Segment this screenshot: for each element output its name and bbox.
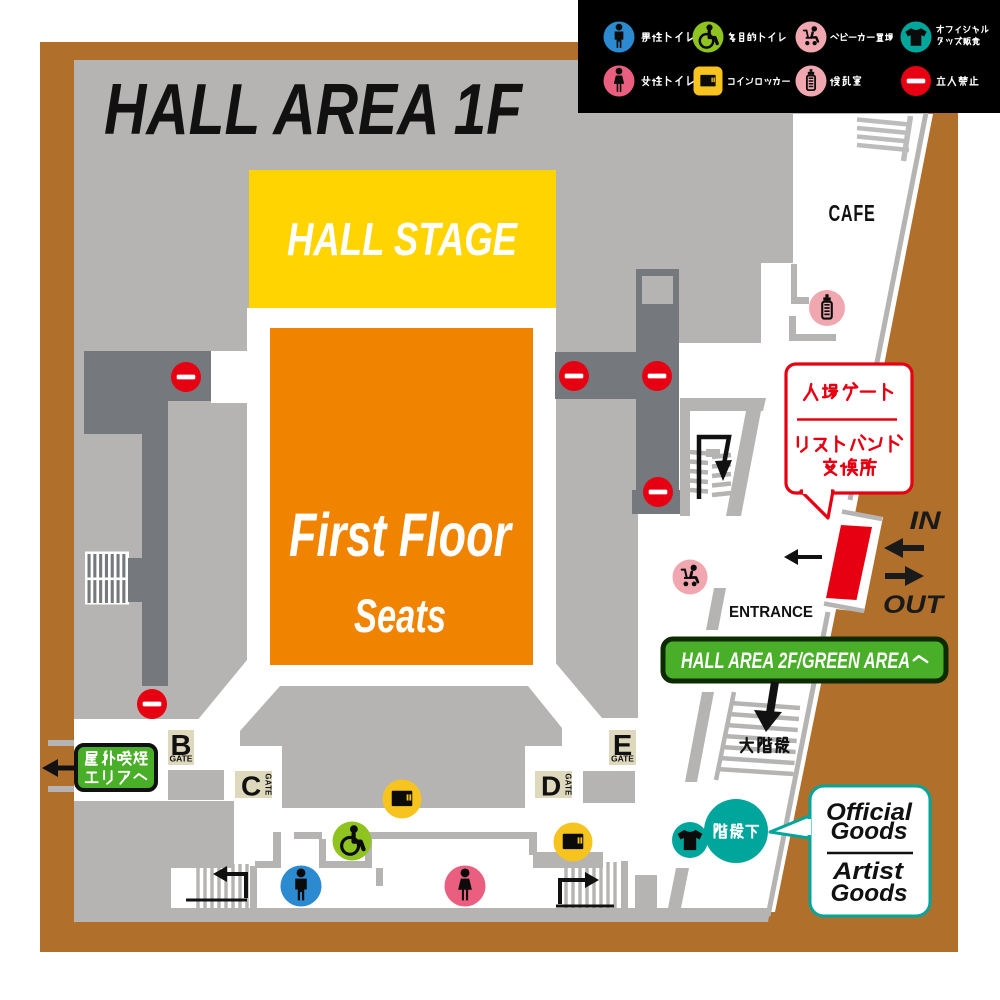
svg-text:IN: IN: [910, 507, 942, 535]
svg-text:ENTRANCE: ENTRANCE: [729, 604, 813, 621]
svg-text:First Floor: First Floor: [289, 501, 513, 569]
svg-text:HALL STAGE: HALL STAGE: [287, 213, 518, 265]
svg-text:GATE: GATE: [564, 773, 573, 795]
svg-text:GATE: GATE: [170, 754, 193, 764]
svg-text:GATE: GATE: [264, 773, 273, 795]
svg-text:OUT: OUT: [883, 591, 946, 619]
svg-text:HALL AREA 1F: HALL AREA 1F: [104, 70, 524, 150]
svg-text:CAFE: CAFE: [829, 200, 876, 226]
svg-text:C: C: [241, 771, 261, 802]
svg-text:GATE: GATE: [611, 754, 634, 764]
svg-text:HALL AREA 2F/GREEN AREA: HALL AREA 2F/GREEN AREA: [681, 648, 910, 673]
svg-text:D: D: [541, 771, 561, 802]
svg-text:Seats: Seats: [354, 589, 446, 642]
svg-text:Goods: Goods: [831, 880, 908, 907]
svg-text:Goods: Goods: [831, 818, 908, 845]
